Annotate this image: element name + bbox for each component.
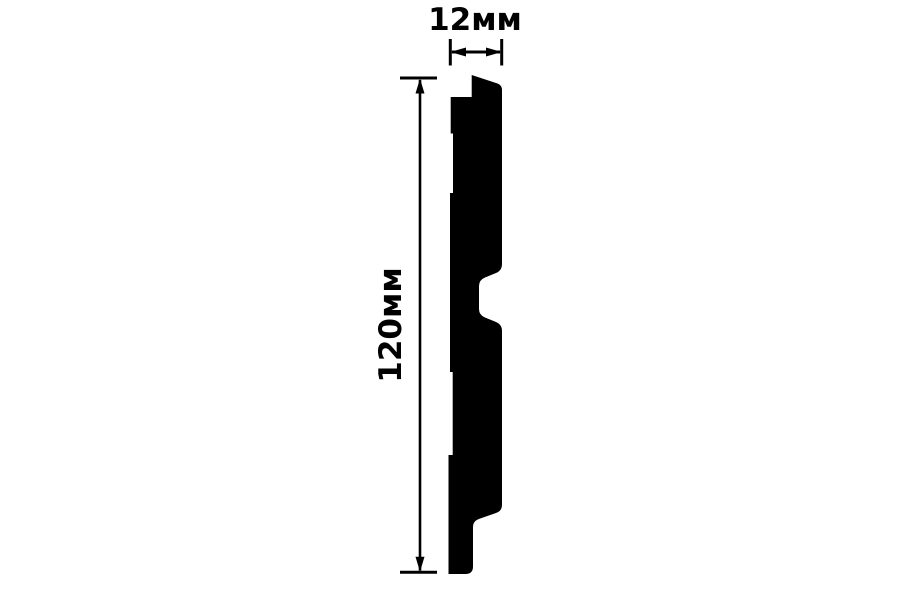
- height-arrowhead-bottom-icon: [416, 557, 425, 572]
- height-dimension-label: 120мм: [373, 267, 409, 382]
- panel-profile-silhouette: [449, 75, 503, 574]
- drawing-canvas: 12мм 120мм: [0, 0, 900, 600]
- width-arrowhead-right-icon: [486, 48, 502, 57]
- profile-dimension-drawing: 12мм 120мм: [0, 0, 900, 600]
- width-dimension-label: 12мм: [428, 2, 522, 38]
- width-dimension: 12мм: [428, 2, 522, 66]
- width-arrowhead-left-icon: [450, 48, 466, 57]
- height-dimension: 120мм: [373, 78, 437, 572]
- height-arrowhead-top-icon: [416, 79, 425, 94]
